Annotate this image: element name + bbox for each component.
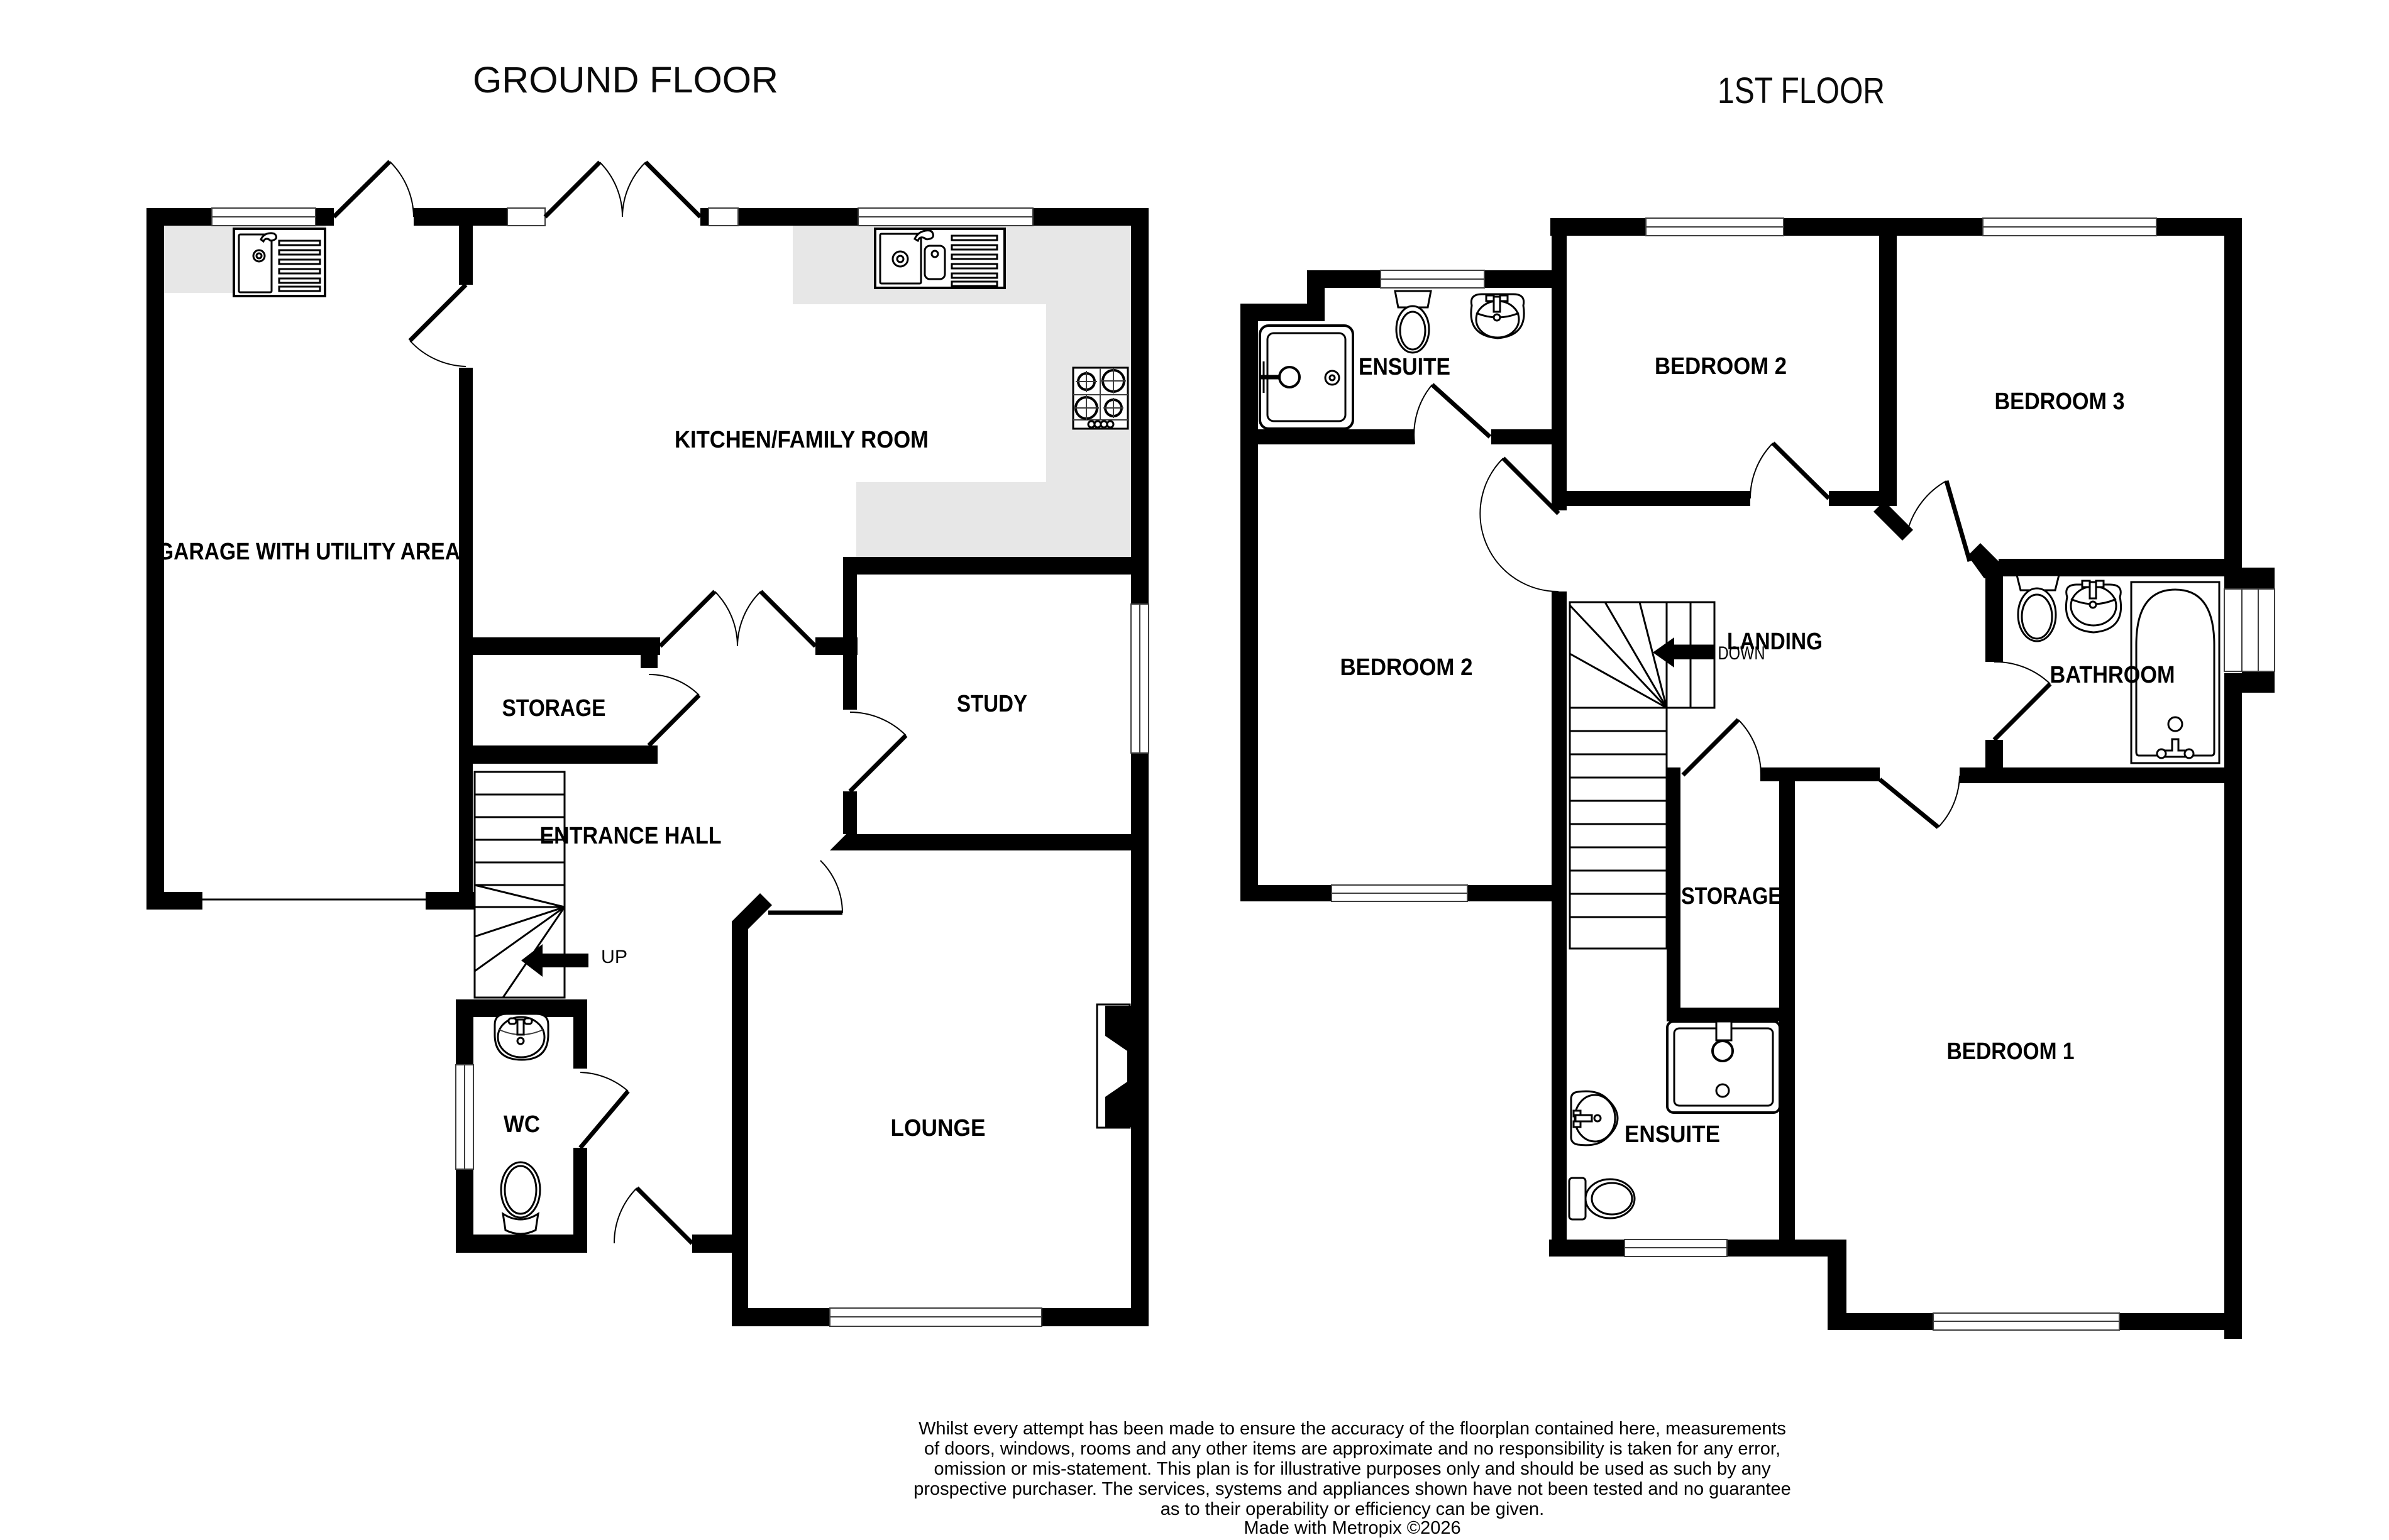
svg-text:GROUND FLOOR: GROUND FLOOR xyxy=(473,60,778,101)
svg-text:DOWN: DOWN xyxy=(1718,643,1765,664)
svg-text:GARAGE WITH UTILITY AREA: GARAGE WITH UTILITY AREA xyxy=(157,539,460,565)
svg-text:ENSUITE: ENSUITE xyxy=(1359,354,1450,380)
svg-text:BATHROOM: BATHROOM xyxy=(2050,662,2175,688)
svg-text:LOUNGE: LOUNGE xyxy=(891,1115,986,1141)
svg-text:WC: WC xyxy=(504,1111,540,1138)
svg-text:as to their operability or eff: as to their operability or efficiency ca… xyxy=(1161,1499,1544,1519)
svg-text:BEDROOM 3: BEDROOM 3 xyxy=(1995,388,2125,415)
svg-text:STUDY: STUDY xyxy=(957,691,1027,717)
svg-text:KITCHEN/FAMILY ROOM: KITCHEN/FAMILY ROOM xyxy=(675,427,929,453)
svg-text:STORAGE: STORAGE xyxy=(502,695,606,722)
svg-text:Whilst every attempt has been: Whilst every attempt has been made to en… xyxy=(919,1419,1786,1439)
svg-text:BEDROOM 2: BEDROOM 2 xyxy=(1340,654,1473,681)
svg-text:Made with Metropix ©2026: Made with Metropix ©2026 xyxy=(1244,1518,1460,1538)
svg-text:STORAGE: STORAGE xyxy=(1681,883,1782,910)
svg-text:of doors, windows, rooms and a: of doors, windows, rooms and any other i… xyxy=(924,1439,1780,1459)
svg-text:ENSUITE: ENSUITE xyxy=(1625,1121,1720,1148)
svg-text:1ST FLOOR: 1ST FLOOR xyxy=(1718,70,1885,111)
svg-text:omission or mis-statement. Thi: omission or mis-statement. This plan is … xyxy=(934,1459,1771,1479)
svg-text:BEDROOM 2: BEDROOM 2 xyxy=(1655,353,1787,380)
svg-text:prospective purchaser. The ser: prospective purchaser. The services, sys… xyxy=(913,1479,1791,1499)
svg-text:UP: UP xyxy=(601,947,627,967)
svg-text:BEDROOM 1: BEDROOM 1 xyxy=(1947,1038,2075,1065)
svg-text:ENTRANCE HALL: ENTRANCE HALL xyxy=(540,823,722,849)
